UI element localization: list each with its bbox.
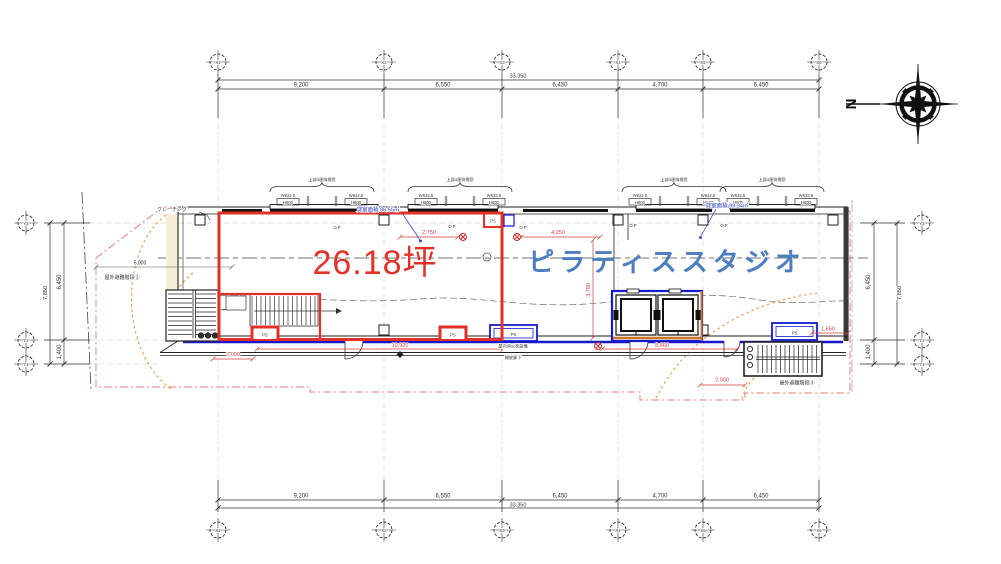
tenant-area-title: 26.18坪 — [312, 244, 437, 282]
stair-right — [744, 342, 822, 376]
dim-top-seg: 6,550 — [435, 83, 451, 89]
window-width-label: W622.5 — [349, 193, 364, 198]
dim-left-seg: 1,400 — [57, 344, 63, 360]
studio-title: ピラティススタジオ — [528, 247, 805, 277]
dim-right-total: 7,850 — [897, 286, 903, 300]
dim-top-seg: 6,450 — [552, 83, 568, 89]
stair-right-label: 屋外避難階段③ — [779, 380, 814, 387]
ps-label: PS — [792, 331, 798, 336]
dim-2750: 2,750 — [422, 230, 436, 236]
dim-left-total: 7,850 — [43, 286, 49, 300]
grid-bubbles-top — [206, 50, 831, 74]
grid-bubble-label: X6 — [816, 60, 822, 65]
window-annotation: 上部4連排煙窓 W622.5 H600 W622.5 H600 — [408, 176, 512, 206]
dim-left-seg: 6,450 — [57, 274, 63, 290]
window-height-label: H600 — [489, 200, 500, 205]
dim-right-seg: 6,450 — [866, 274, 872, 290]
grid-bubble-label: X4 — [615, 60, 621, 65]
window-width-label: W622.5 — [701, 193, 716, 198]
window-note-label: 上部4連排煙窓 — [446, 176, 473, 183]
window-width-label: W622.5 — [633, 193, 648, 198]
window-width-label: W622.5 — [281, 193, 296, 198]
dim-10920: 10,920 — [392, 343, 409, 349]
floor-plan-page: 上部4連排煙窓 W622.5 H600 W622.5 H600 上部4連排煙窓 … — [0, 0, 1001, 564]
op-label: O.P — [519, 225, 526, 230]
grating-label: グレーチング — [157, 206, 187, 213]
window-height-label: H600 — [801, 200, 812, 205]
dim-1650: 1,650 — [821, 327, 835, 333]
stair-left — [166, 290, 218, 341]
grid-bubble-label: X1 — [215, 528, 221, 533]
dim-right: 6,450 1,400 7,850 Y3 Y2 Y1 — [860, 211, 934, 376]
dim-top-seg: 6,450 — [753, 83, 769, 89]
grid-bubble-label: X3 — [499, 528, 505, 533]
window-note-label: 上部4連排煙窓 — [308, 176, 335, 183]
dim-bottom-seg: 9,200 — [293, 494, 309, 500]
window-annotation: 上部4連排煙窓 W622.5 H600 W622.5 H600 — [622, 176, 726, 206]
stair-interior — [226, 294, 342, 326]
grid-bubbles-bottom — [206, 518, 831, 542]
grid-bubble-label: Y3 — [919, 221, 925, 226]
compass-rose: N — [843, 64, 958, 144]
dim-bottom: 9,200 6,550 6,450 4,700 6,450 33,350 X1 … — [206, 480, 831, 542]
window-annotation: 上部4連排煙窓 W622.5 H600 W622.5 H600 — [270, 176, 374, 206]
dim-2000-left: 2,000 — [226, 352, 240, 358]
window-width-label: W622.5 — [487, 193, 502, 198]
grid-bubble-label: X3 — [499, 60, 505, 65]
grid-bubble-label: X2 — [381, 60, 387, 65]
tenant-area-note: 貸室面積 86.55㎡ — [357, 206, 400, 214]
ps-label: PS — [262, 333, 268, 338]
dim-2000-right: 2,000 — [715, 378, 729, 384]
window-width-label: W622.5 — [731, 193, 746, 198]
dim-top-total: 33,350 — [510, 74, 527, 80]
op-label: O.P — [629, 223, 636, 228]
op-label: O.P — [333, 225, 340, 230]
dim-top-seg: 9,200 — [293, 83, 309, 89]
dim-8660: 8,660 — [655, 343, 669, 349]
dim-bottom-seg: 4,700 — [652, 494, 668, 500]
grid-bubbles-right — [910, 211, 934, 376]
dim-bottom-seg: 6,450 — [552, 494, 568, 500]
fire-hydrant-label: 屋内消火栓設備 — [498, 343, 527, 350]
grid-bubble-label: Y2 — [23, 338, 29, 343]
window-height-label: H600 — [635, 200, 646, 205]
window-width-label: W622.5 — [799, 193, 814, 198]
window-note-label: 上部4連排煙窓 — [758, 176, 785, 183]
grid-bubbles-left — [14, 211, 38, 376]
dim-bottom-seg: 6,450 — [753, 494, 769, 500]
window-width-label: W622.5 — [419, 193, 434, 198]
window-height-label: H600 — [283, 200, 294, 205]
window-height-label: H600 — [351, 200, 362, 205]
grid-bubble-label: X5 — [700, 60, 706, 65]
grid-bubble-label: X5 — [700, 528, 706, 533]
grid-bubble-label: Y1 — [23, 362, 29, 367]
dim-bottom-total: 33,350 — [510, 503, 527, 509]
floor-plan-drawing: 上部4連排煙窓 W622.5 H600 W622.5 H600 上部4連排煙窓 … — [0, 0, 1001, 564]
op-label: O.P — [448, 224, 455, 229]
open-corridor-label: 開放廊下 — [505, 354, 522, 361]
blue-duct — [504, 215, 514, 226]
grid-bubble-label: X2 — [381, 528, 387, 533]
ps-label: PS — [450, 333, 456, 338]
studio-area-note: 貸室面積 99.34㎡ — [706, 202, 749, 210]
grid-bubble-label: Y3 — [23, 221, 29, 226]
grid-bubble-label: X6 — [816, 528, 822, 533]
elevators — [612, 289, 702, 341]
dim-5000: 5,000 — [134, 261, 147, 267]
dim-right-seg: 1,400 — [866, 344, 872, 360]
grid-bubble-label: Y2 — [919, 338, 925, 343]
op-label: O.P — [720, 223, 727, 228]
window-annotation: 上部4連排煙窓 W622.5 H600 W622.5 H600 — [720, 176, 824, 206]
dim-3780: 3,780 — [586, 283, 592, 297]
dim-left: 6,450 1,400 7,850 Y3 Y2 Y1 — [14, 211, 90, 376]
stair-left-label: 屋外避難階段② — [104, 274, 139, 281]
window-note-label: 上部4連排煙窓 — [660, 176, 687, 183]
ps-label: PS — [511, 332, 517, 337]
north-label: N — [843, 99, 860, 110]
window-height-label: H600 — [421, 200, 432, 205]
dim-bottom-seg: 6,550 — [435, 494, 451, 500]
dim-4250: 4,250 — [551, 230, 565, 236]
grid-bubble-label: X4 — [615, 528, 621, 533]
ps-label: PS — [490, 219, 496, 224]
grid-bubble-label: Y1 — [919, 362, 925, 367]
dim-top: 33,350 9,200 6,550 6,450 4,700 6,450 X1 … — [206, 50, 831, 118]
grid-bubble-label: X1 — [215, 60, 221, 65]
dim-top-seg: 4,700 — [652, 83, 668, 89]
